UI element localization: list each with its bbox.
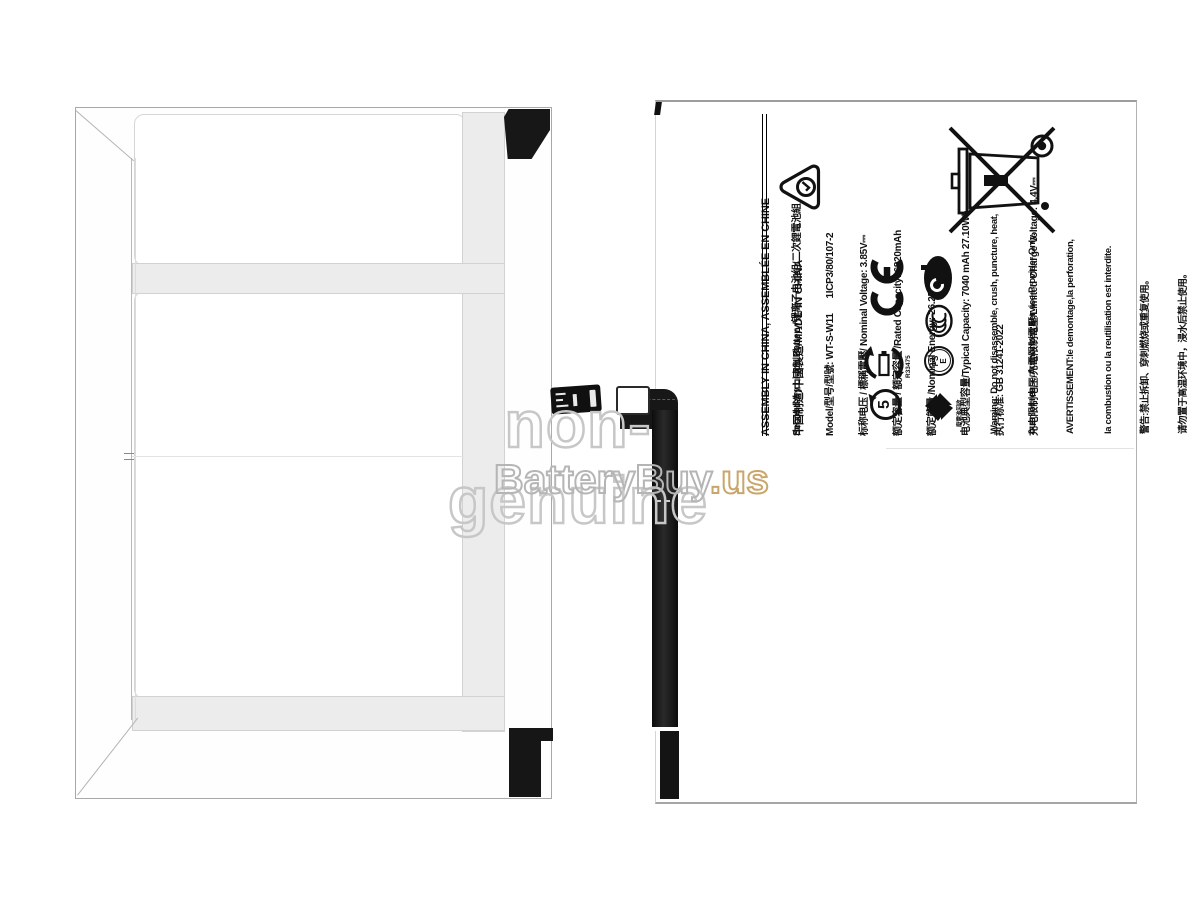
watermark-brand-name: BatteryBuy — [494, 456, 710, 502]
spec-line: Model/型号/型號: WT-S-W11 1ICP3/80/107-2 — [825, 178, 836, 436]
battery-corner-fold — [77, 718, 138, 796]
ce-mark-icon — [869, 255, 910, 319]
taiwan-recycle-label: 廢電池回收 — [955, 399, 963, 427]
watermark-brand: BatteryBuy.us — [494, 456, 734, 503]
battery-black-bottom-tab — [509, 728, 541, 797]
battery-label-content: ASSEMBLY IN CHINA, ASSEMBLÉE EN CHINE 中国… — [738, 100, 1072, 450]
pse-mark-icon: PS E — [924, 346, 954, 376]
warning-line: AVERTISSEMENT:le demontage,la perforatio… — [1065, 214, 1078, 434]
ccc-mark-icon — [925, 304, 958, 338]
certification-triangle-icon — [778, 162, 831, 212]
battery-seam-tick — [124, 453, 134, 460]
battery-frame-bottom-band — [132, 696, 505, 731]
warning-line: 请勿置于高温环境中，浸水后禁止使用。 — [1178, 214, 1191, 434]
battery-black-corner-tab — [504, 109, 550, 159]
battery-recycle-icon — [863, 342, 910, 384]
pse-e-text: E — [940, 351, 949, 372]
battery-label: ASSEMBLY IN CHINA, ASSEMBLÉE EN CHINE 中国… — [738, 100, 1072, 450]
weee-crossed-bin-icon — [944, 124, 1063, 236]
battery-cell-panel-top — [134, 114, 466, 266]
watermark-brand-suffix: .us — [710, 456, 769, 502]
battery-frame-middle-band — [132, 263, 505, 294]
warning-line: la combustion ou la reutilisation est in… — [1103, 214, 1116, 434]
label-warning: Warning: Do not disassemble, crush, punc… — [964, 214, 1200, 434]
flex-cable-foot — [660, 731, 679, 799]
spec-line: Secondary Li-ion Battery/锂离子电池组/二次鋰電池組 — [792, 178, 803, 436]
recycle-5-number: 5 — [876, 400, 893, 409]
battery-edge-line — [131, 158, 132, 720]
warning-line: Warning: Do not disassemble, crush, punc… — [989, 214, 1002, 434]
taiwan-recycle-icon — [924, 392, 959, 422]
warning-line: burn or reuse.Authorized Service Provide… — [1027, 214, 1040, 434]
warning-line: 警告:禁止拆卸、穿刺燃烧或重复使用。 — [1140, 214, 1153, 434]
battery-black-bottom-tab-step — [541, 728, 553, 741]
recycle-5-icon: 5 — [870, 389, 901, 420]
battery-recycle-code: R33475 — [905, 355, 912, 378]
battery-corner-mark — [654, 102, 662, 115]
certification-mark-icon — [924, 256, 952, 300]
battery-edge-line — [135, 158, 136, 720]
battery-corner-fold — [75, 110, 134, 161]
